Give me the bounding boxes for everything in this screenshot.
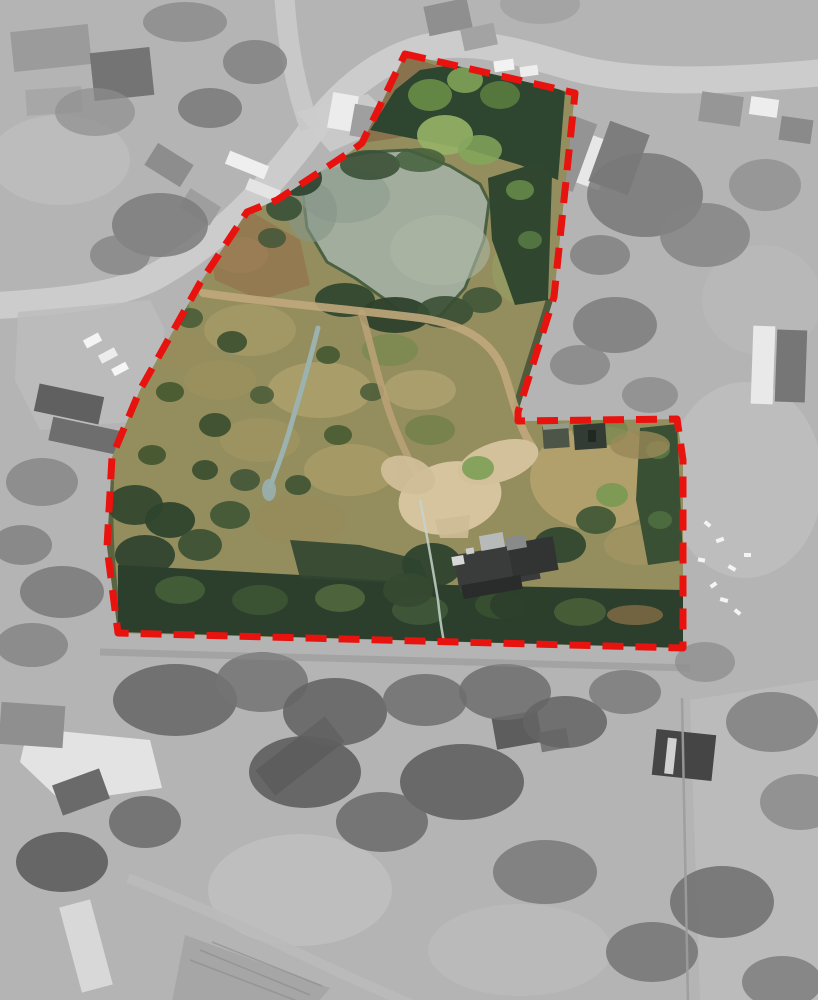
gray-trees-28 <box>726 692 818 752</box>
gray-trees-8 <box>729 159 801 211</box>
gray-trees-3 <box>178 88 242 128</box>
gray-trees-33 <box>493 840 597 904</box>
gray-trees-31 <box>606 922 698 982</box>
white-shed-right <box>751 326 776 405</box>
gray-trees-21 <box>249 736 361 808</box>
gray-trees-11 <box>550 345 610 385</box>
gray-trees-23 <box>523 696 607 748</box>
gray-trees-2 <box>223 40 287 84</box>
scrub-light-bottom2 <box>428 904 612 996</box>
gray-trees-12 <box>622 377 678 413</box>
gray-trees-15 <box>20 566 104 618</box>
gray-trees-35 <box>109 796 181 848</box>
gray-trees-24 <box>589 670 661 714</box>
field-light-right <box>667 382 818 578</box>
gray-trees-13 <box>6 458 78 506</box>
gray-trees-20 <box>383 674 467 726</box>
gray-trees-1 <box>143 2 227 42</box>
aerial-site-photo <box>0 0 818 1000</box>
gray-trees-26 <box>336 792 428 852</box>
dark-shed-right <box>775 329 807 402</box>
scene-svg <box>0 0 818 1000</box>
topright-building-2 <box>778 116 813 144</box>
topright-building-1 <box>698 91 744 127</box>
gray-trees-9 <box>570 235 630 275</box>
white-object-8 <box>744 553 751 557</box>
gray-trees-19 <box>283 678 387 746</box>
gray-trees-7 <box>660 203 750 267</box>
gray-trees-34 <box>16 832 108 892</box>
gray-trees-36 <box>55 88 135 136</box>
gray-trees-10 <box>573 297 657 353</box>
gray-trees-5 <box>90 235 150 275</box>
barn-roof-1 <box>10 24 92 72</box>
bottomleft-house-1 <box>0 702 65 748</box>
